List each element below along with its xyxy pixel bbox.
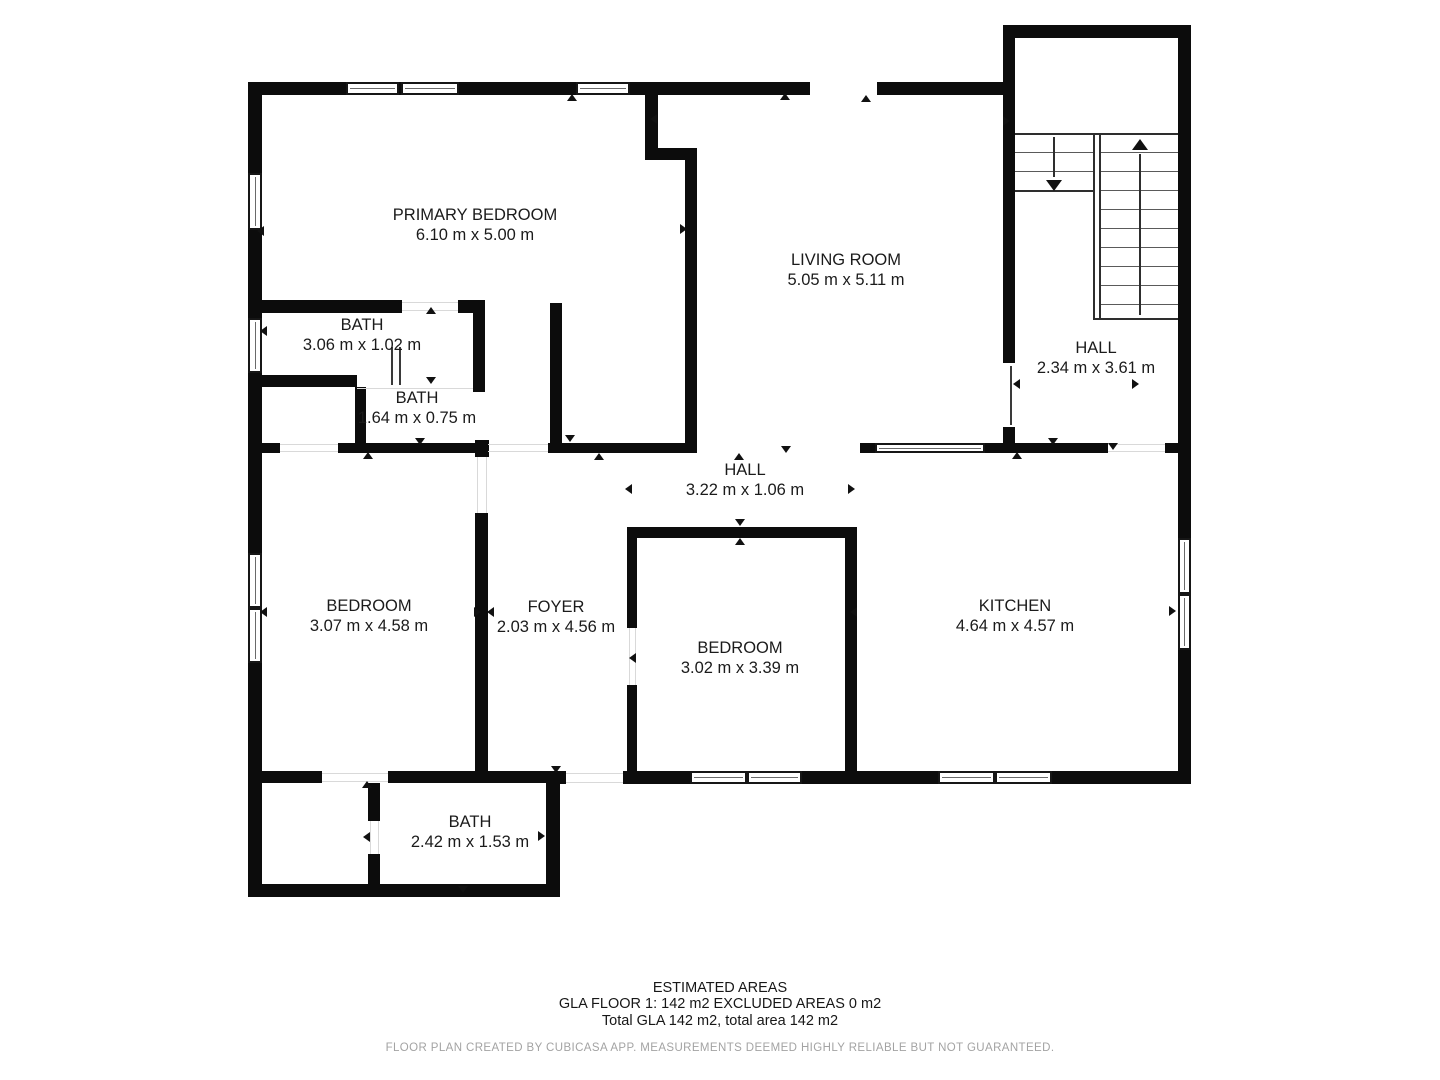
room-name: HALL bbox=[1075, 339, 1116, 357]
wall bbox=[1003, 25, 1191, 38]
wall bbox=[546, 771, 560, 897]
door-swing-marker bbox=[257, 226, 264, 236]
room-label: HALL2.34 m x 3.61 m bbox=[1037, 338, 1155, 378]
wall bbox=[802, 771, 940, 784]
room-label: HALL3.22 m x 1.06 m bbox=[686, 460, 804, 500]
wall bbox=[645, 95, 658, 155]
window-icon bbox=[576, 82, 630, 95]
window-mullion bbox=[255, 177, 256, 226]
room-label: BATH1.64 m x 0.75 m bbox=[358, 388, 476, 428]
wall bbox=[1003, 95, 1015, 363]
door-swing-marker bbox=[363, 832, 370, 842]
window-mullion bbox=[999, 777, 1048, 778]
room-name: KITCHEN bbox=[979, 597, 1051, 615]
door-threshold bbox=[566, 782, 623, 783]
door-threshold bbox=[378, 821, 379, 854]
window-icon bbox=[248, 173, 262, 230]
door-swing-marker bbox=[1013, 379, 1020, 389]
window-mullion bbox=[1184, 542, 1185, 590]
door-swing-marker bbox=[850, 607, 857, 617]
gla-floor-line: GLA FLOOR 1: 142 m2 EXCLUDED AREAS 0 m2 bbox=[0, 996, 1440, 1012]
stairs-edge bbox=[1015, 133, 1178, 135]
window-mullion bbox=[580, 88, 626, 89]
door-swing-marker bbox=[848, 484, 855, 494]
wall bbox=[368, 854, 380, 885]
room-name: BEDROOM bbox=[697, 639, 782, 657]
cubicasa-disclaimer: FLOOR PLAN CREATED BY CUBICASA APP. MEAS… bbox=[0, 1042, 1440, 1054]
room-label: LIVING ROOM5.05 m x 5.11 m bbox=[787, 250, 904, 290]
room-dimensions: 3.07 m x 4.58 m bbox=[310, 616, 428, 636]
door-swing-marker bbox=[781, 446, 791, 453]
room-name: BEDROOM bbox=[326, 597, 411, 615]
door-swing-marker bbox=[735, 519, 745, 526]
door-swing-marker bbox=[625, 484, 632, 494]
door-swing-marker bbox=[565, 435, 575, 442]
door-threshold bbox=[370, 821, 371, 854]
total-gla-line: Total GLA 142 m2, total area 142 m2 bbox=[0, 1013, 1440, 1029]
stairs-direction-line bbox=[1139, 154, 1141, 315]
wall bbox=[368, 783, 380, 821]
wall bbox=[860, 443, 876, 453]
door-swing-marker bbox=[1048, 438, 1058, 445]
door-swing-marker bbox=[415, 438, 425, 445]
door-swing-marker bbox=[567, 94, 577, 101]
door-threshold bbox=[280, 444, 338, 445]
door-threshold bbox=[322, 781, 388, 782]
door-swing-marker bbox=[629, 653, 636, 663]
door-swing-marker bbox=[458, 886, 468, 893]
stairs-divider bbox=[1099, 133, 1101, 318]
room-dimensions: 2.34 m x 3.61 m bbox=[1037, 358, 1155, 378]
room-name: PRIMARY BEDROOM bbox=[393, 206, 557, 224]
wall bbox=[248, 884, 560, 897]
door-swing-marker bbox=[426, 307, 436, 314]
stairs-direction-line bbox=[1053, 137, 1055, 177]
wall bbox=[473, 300, 485, 392]
wall bbox=[845, 527, 857, 773]
window-mullion bbox=[751, 777, 798, 778]
door-swing-marker bbox=[594, 453, 604, 460]
room-name: HALL bbox=[724, 461, 765, 479]
stairs-down-arrow-icon bbox=[1046, 180, 1062, 191]
wall bbox=[984, 443, 1108, 453]
wall bbox=[250, 443, 280, 453]
door-swing-marker bbox=[680, 224, 687, 234]
window-mullion bbox=[255, 612, 256, 659]
stair-tread bbox=[1101, 152, 1178, 153]
wall bbox=[1003, 25, 1015, 95]
door-swing-marker bbox=[1132, 379, 1139, 389]
door-swing-marker bbox=[260, 607, 267, 617]
room-label: BEDROOM3.07 m x 4.58 m bbox=[310, 596, 428, 636]
wall bbox=[475, 440, 489, 457]
door-threshold bbox=[486, 457, 487, 513]
room-name: LIVING ROOM bbox=[791, 251, 901, 269]
window-mullion bbox=[255, 557, 256, 604]
wall bbox=[475, 513, 488, 773]
stairs-up-arrow-icon bbox=[1132, 139, 1148, 150]
wall bbox=[250, 375, 357, 387]
window-mullion bbox=[694, 777, 743, 778]
door-swing-marker bbox=[260, 326, 267, 336]
room-dimensions: 5.05 m x 5.11 m bbox=[787, 270, 904, 290]
stairs-divider bbox=[1093, 133, 1095, 318]
room-name: BATH bbox=[396, 389, 439, 407]
room-name: BATH bbox=[341, 316, 384, 334]
door-swing-marker bbox=[1169, 606, 1176, 616]
door-threshold bbox=[488, 451, 548, 452]
door-swing-marker bbox=[426, 377, 436, 384]
door-swing-marker bbox=[1003, 116, 1010, 126]
door-threshold bbox=[488, 444, 548, 445]
window-mullion bbox=[350, 88, 395, 89]
wall bbox=[1050, 771, 1191, 784]
wall bbox=[388, 771, 546, 783]
room-dimensions: 3.06 m x 1.02 m bbox=[303, 335, 421, 355]
door-jamb bbox=[1010, 366, 1012, 425]
door-swing-marker bbox=[780, 93, 790, 100]
wall bbox=[550, 303, 562, 451]
room-dimensions: 3.22 m x 1.06 m bbox=[686, 480, 804, 500]
window-icon bbox=[248, 553, 262, 608]
door-swing-marker bbox=[1108, 443, 1118, 450]
window-icon bbox=[938, 771, 995, 784]
door-swing-marker bbox=[362, 781, 372, 788]
door-swing-marker bbox=[861, 95, 871, 102]
window-mullion bbox=[942, 777, 991, 778]
window-mullion bbox=[255, 322, 256, 369]
door-swing-marker bbox=[487, 607, 494, 617]
door-swing-marker bbox=[650, 114, 657, 124]
door-swing-marker bbox=[735, 538, 745, 545]
window-icon bbox=[995, 771, 1052, 784]
door-threshold bbox=[280, 451, 338, 452]
room-dimensions: 1.64 m x 0.75 m bbox=[358, 408, 476, 428]
room-dimensions: 6.10 m x 5.00 m bbox=[393, 225, 557, 245]
estimated-areas-title: ESTIMATED AREAS bbox=[0, 980, 1440, 996]
room-label: BATH3.06 m x 1.02 m bbox=[303, 315, 421, 355]
window-icon bbox=[875, 443, 985, 453]
wall bbox=[548, 443, 697, 453]
window-mullion bbox=[879, 448, 981, 449]
door-swing-marker bbox=[1012, 452, 1022, 459]
room-label: PRIMARY BEDROOM6.10 m x 5.00 m bbox=[393, 205, 557, 245]
room-label: BATH2.42 m x 1.53 m bbox=[411, 812, 529, 852]
window-icon bbox=[1178, 538, 1191, 594]
room-dimensions: 4.64 m x 4.57 m bbox=[956, 616, 1074, 636]
window-icon bbox=[401, 82, 459, 95]
stairs-edge bbox=[1093, 318, 1178, 320]
floorplan-canvas: PRIMARY BEDROOM6.10 m x 5.00 mLIVING ROO… bbox=[0, 0, 1440, 1080]
wall bbox=[250, 771, 322, 783]
wall bbox=[250, 300, 402, 313]
wall bbox=[877, 82, 1015, 95]
door-swing-marker bbox=[551, 766, 561, 773]
window-icon bbox=[346, 82, 399, 95]
room-dimensions: 2.42 m x 1.53 m bbox=[411, 832, 529, 852]
window-mullion bbox=[1184, 598, 1185, 646]
wall bbox=[627, 527, 853, 538]
door-swing-marker bbox=[474, 607, 481, 617]
door-swing-marker bbox=[363, 452, 373, 459]
door-threshold bbox=[402, 302, 458, 303]
wall bbox=[627, 527, 637, 628]
window-mullion bbox=[405, 88, 455, 89]
room-dimensions: 2.03 m x 4.56 m bbox=[497, 617, 615, 637]
door-threshold bbox=[566, 773, 623, 774]
door-threshold bbox=[477, 457, 478, 513]
wall bbox=[338, 443, 475, 453]
wall bbox=[1178, 25, 1191, 784]
room-name: BATH bbox=[449, 813, 492, 831]
wall bbox=[248, 82, 810, 95]
window-icon bbox=[690, 771, 747, 784]
window-icon bbox=[747, 771, 802, 784]
door-swing-marker bbox=[538, 831, 545, 841]
room-dimensions: 3.02 m x 3.39 m bbox=[681, 658, 799, 678]
wall bbox=[685, 148, 697, 452]
wall bbox=[1165, 443, 1191, 453]
room-label: FOYER2.03 m x 4.56 m bbox=[497, 597, 615, 637]
wall bbox=[627, 685, 637, 773]
room-label: BEDROOM3.02 m x 3.39 m bbox=[681, 638, 799, 678]
window-icon bbox=[1178, 594, 1191, 650]
door-threshold bbox=[322, 773, 388, 774]
room-name: FOYER bbox=[528, 598, 585, 616]
door-threshold bbox=[1108, 451, 1165, 452]
door-swing-marker bbox=[734, 453, 744, 460]
estimated-areas-block: ESTIMATED AREAS GLA FLOOR 1: 142 m2 EXCL… bbox=[0, 980, 1440, 1029]
room-label: KITCHEN4.64 m x 4.57 m bbox=[956, 596, 1074, 636]
